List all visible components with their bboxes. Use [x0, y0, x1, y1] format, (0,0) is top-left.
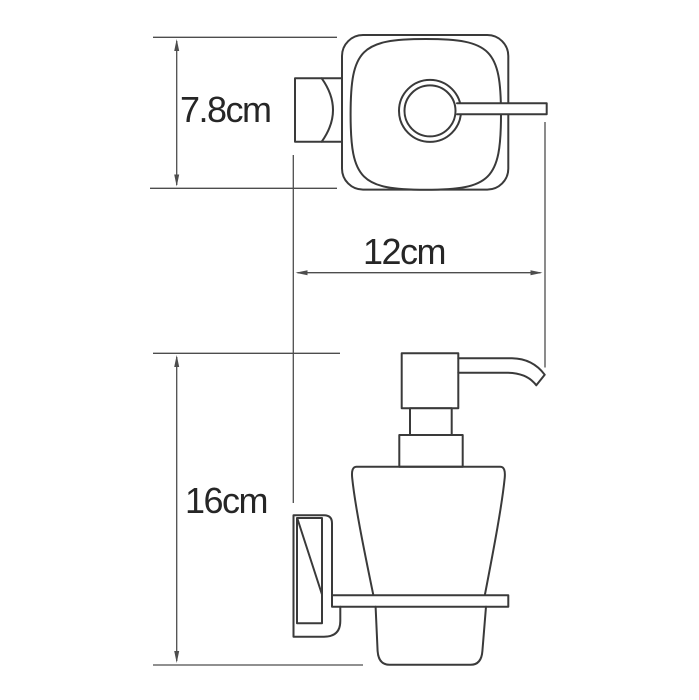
wall-plate-inner-panel — [297, 518, 322, 623]
holder-ring-side — [332, 595, 508, 606]
pump-collar-ring-inner — [405, 85, 456, 136]
front-view — [294, 353, 545, 665]
pump-spout — [458, 358, 544, 385]
dimension-label-overall-height: 16cm — [185, 483, 267, 519]
arrow-right-icon — [531, 270, 543, 275]
arrow-up-icon — [174, 39, 179, 51]
pump-head — [402, 353, 459, 408]
bottle-cup-lower — [376, 607, 486, 665]
bottle-body — [352, 467, 505, 597]
arrow-down-icon — [174, 651, 179, 663]
arrow-left-icon — [296, 270, 308, 275]
soap-dispenser-drawing — [0, 0, 699, 700]
wall-plate-diagonal-edge — [298, 519, 323, 595]
dimension-label-reach-width: 12cm — [363, 234, 445, 270]
arrow-down-icon — [174, 175, 179, 187]
pump-neck — [410, 408, 452, 435]
dimension-label-bracket-depth: 7.8cm — [180, 92, 271, 128]
pump-lever-top-view — [457, 103, 547, 114]
arrow-up-icon — [174, 355, 179, 367]
pump-collar — [399, 435, 462, 467]
wall-plate-top-view — [295, 78, 342, 141]
top-view — [295, 35, 547, 190]
technical-drawing-canvas: 7.8cm 12cm 16cm — [0, 0, 699, 700]
